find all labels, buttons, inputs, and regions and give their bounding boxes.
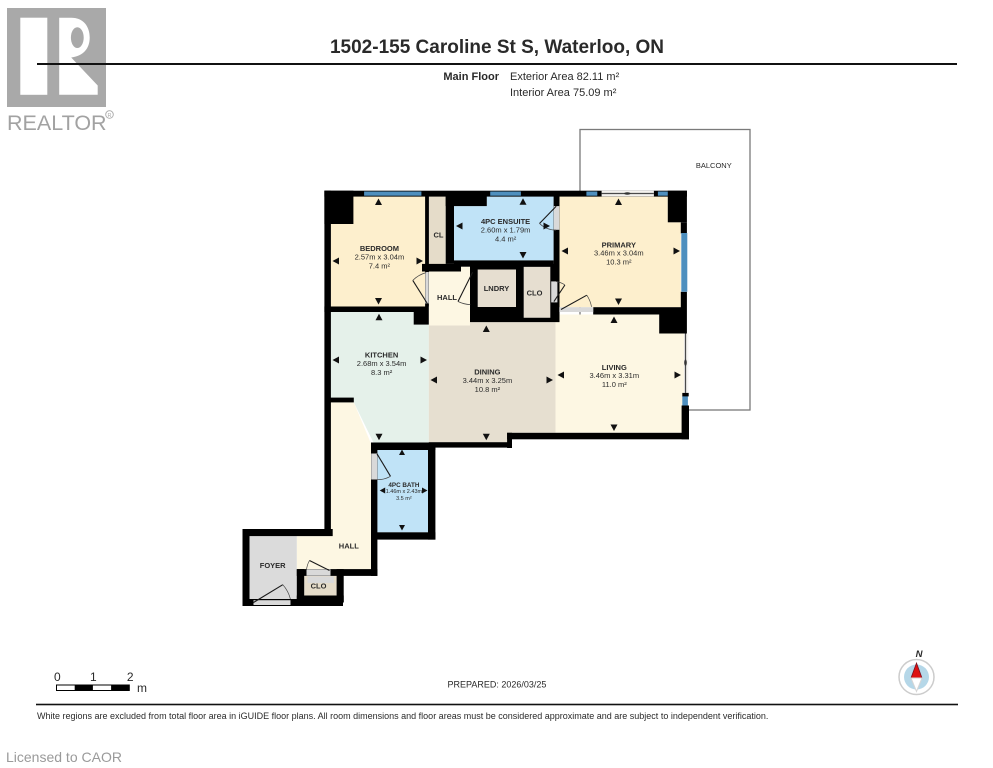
svg-text:CLO: CLO <box>527 289 543 298</box>
svg-text:REALTOR: REALTOR <box>7 111 107 135</box>
svg-text:BALCONY: BALCONY <box>696 161 732 170</box>
svg-text:3.44m x 3.25m: 3.44m x 3.25m <box>463 376 513 385</box>
svg-text:R: R <box>108 113 112 119</box>
svg-text:FOYER: FOYER <box>260 561 286 570</box>
svg-text:3.46m x 3.31m: 3.46m x 3.31m <box>589 371 639 380</box>
svg-text:2: 2 <box>127 670 134 684</box>
svg-text:Exterior Area 82.11 m²: Exterior Area 82.11 m² <box>510 71 620 83</box>
svg-text:m: m <box>137 681 147 695</box>
svg-text:4.4 m²: 4.4 m² <box>495 234 517 243</box>
svg-text:8.3 m²: 8.3 m² <box>371 368 393 377</box>
svg-text:2.60m x 1.79m: 2.60m x 1.79m <box>481 225 531 234</box>
svg-text:Licensed to CAOR: Licensed to CAOR <box>6 749 122 765</box>
svg-text:White regions are excluded fro: White regions are excluded from total fl… <box>37 711 768 721</box>
svg-text:HALL: HALL <box>437 293 457 302</box>
svg-text:PREPARED: 2026/03/25: PREPARED: 2026/03/25 <box>448 680 547 690</box>
svg-text:3.5 m²: 3.5 m² <box>396 496 412 502</box>
svg-text:2.57m x 3.04m: 2.57m x 3.04m <box>355 252 405 261</box>
svg-text:Main Floor: Main Floor <box>443 71 499 83</box>
svg-text:CLO: CLO <box>311 581 327 590</box>
svg-text:7.4 m²: 7.4 m² <box>369 261 391 270</box>
svg-text:1502-155 Caroline St S, Waterl: 1502-155 Caroline St S, Waterloo, ON <box>330 37 664 58</box>
svg-text:1: 1 <box>90 670 97 684</box>
svg-text:3.46m x 3.04m: 3.46m x 3.04m <box>594 249 644 258</box>
svg-text:Interior Area 75.09 m²: Interior Area 75.09 m² <box>510 87 617 99</box>
svg-text:0: 0 <box>54 670 61 684</box>
svg-text:11.0 m²: 11.0 m² <box>602 380 627 389</box>
svg-text:HALL: HALL <box>339 541 359 550</box>
svg-text:1.46m x 2.43m: 1.46m x 2.43m <box>386 489 423 495</box>
svg-text:10.8 m²: 10.8 m² <box>475 385 501 394</box>
svg-text:2.68m x 3.54m: 2.68m x 3.54m <box>357 359 407 368</box>
svg-text:CL: CL <box>434 231 444 240</box>
svg-text:4PC BATH: 4PC BATH <box>388 482 419 489</box>
svg-text:N: N <box>916 649 924 660</box>
svg-text:LNDRY: LNDRY <box>484 284 510 293</box>
svg-text:10.3 m²: 10.3 m² <box>606 258 632 267</box>
